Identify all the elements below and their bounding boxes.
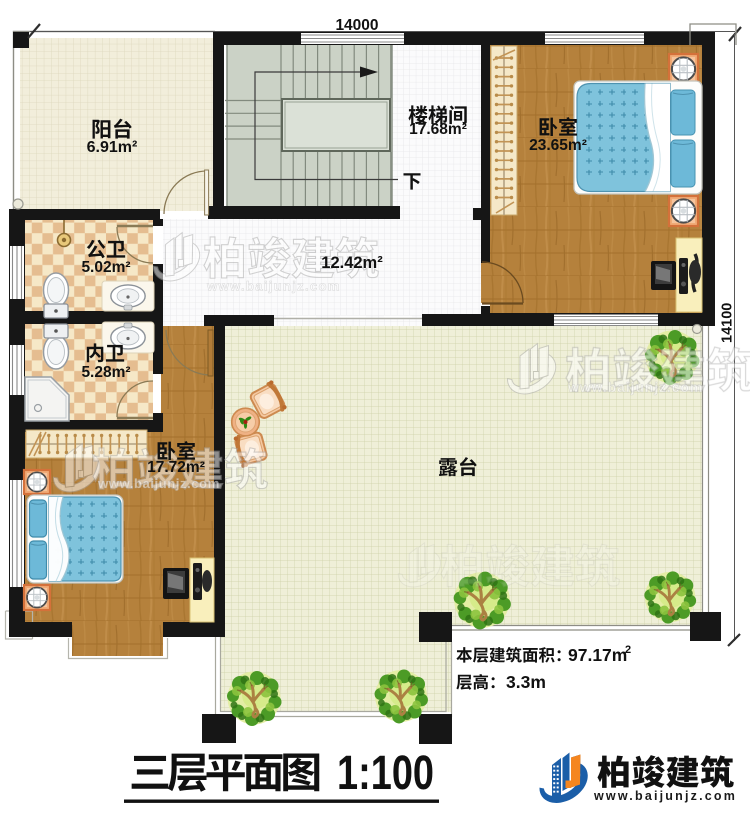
svg-text:1:100: 1:100 — [337, 747, 434, 800]
svg-text:12.42m²: 12.42m² — [321, 254, 383, 272]
svg-text:5.28m²: 5.28m² — [81, 364, 130, 381]
svg-text:14000: 14000 — [335, 17, 378, 34]
svg-text:www.baijunjz.com: www.baijunjz.com — [206, 279, 341, 294]
svg-text:2: 2 — [625, 644, 631, 656]
svg-text:6.91m²: 6.91m² — [87, 139, 138, 156]
svg-text:www.baijunjz.com: www.baijunjz.com — [593, 789, 737, 803]
svg-text:www.baijunjz.com: www.baijunjz.com — [567, 379, 703, 395]
svg-text:3.3m: 3.3m — [506, 672, 546, 692]
svg-text:14100: 14100 — [720, 303, 736, 343]
svg-text:17.68m²: 17.68m² — [409, 121, 467, 138]
svg-text:5.02m²: 5.02m² — [81, 259, 130, 276]
svg-text:www.baijunjz.com: www.baijunjz.com — [97, 476, 220, 491]
svg-text:23.65m²: 23.65m² — [529, 137, 587, 154]
svg-text:97.17m: 97.17m — [568, 645, 627, 665]
svg-text:17.72m²: 17.72m² — [147, 459, 205, 476]
